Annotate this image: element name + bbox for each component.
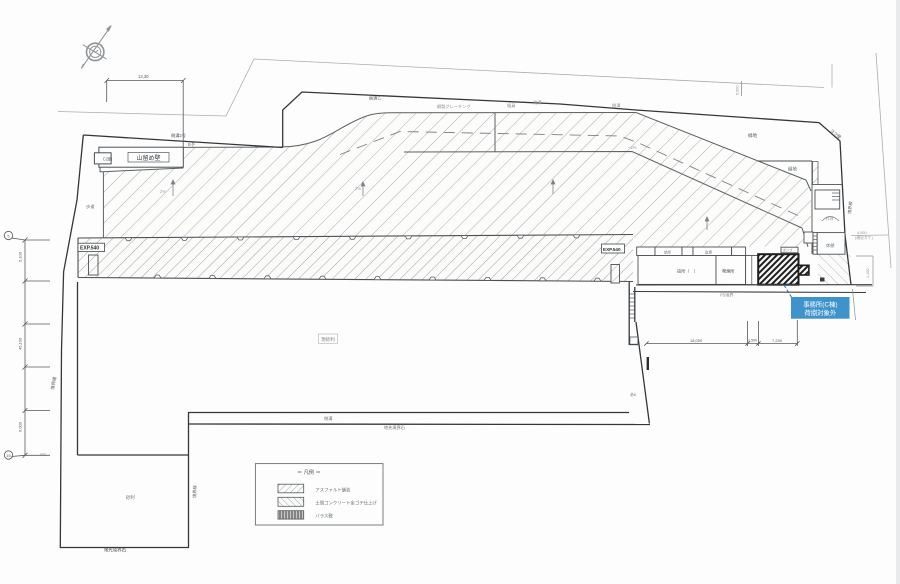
svg-text:詰所（ ）: 詰所（ ） [677,268,698,275]
svg-text:バラス敷: バラス敷 [315,513,333,520]
svg-text:側溝乙: 側溝乙 [369,94,382,102]
svg-text:15: 15 [6,453,11,458]
svg-text:B予: B予 [188,141,195,147]
svg-text:P5境界: P5境界 [720,292,734,299]
svg-text:5: 5 [7,233,10,238]
svg-text:2%: 2% [160,189,166,194]
svg-text:5,000: 5,000 [736,85,740,95]
svg-text:側溝: 側溝 [612,102,621,109]
svg-text:喫煙所: 喫煙所 [722,268,735,275]
svg-text:2%: 2% [355,186,361,191]
svg-text:土間コンクリート金ゴテ仕上げ: 土間コンクリート金ゴテ仕上げ [315,500,377,507]
svg-text:歩道: 歩道 [86,203,95,210]
svg-text:現砂利: 現砂利 [321,336,335,343]
svg-text:緑地: 緑地 [788,166,797,172]
svg-text:EXP.540: EXP.540 [603,247,621,252]
svg-text:砂利: 砂利 [126,494,135,501]
svg-text:＝ 凡例 ＝: ＝ 凡例 ＝ [297,468,321,476]
svg-text:EXP.540: EXP.540 [80,246,99,252]
svg-text:鋼製グレーチング: 鋼製グレーチング [437,103,471,110]
svg-text:13,30: 13,30 [138,74,149,79]
svg-text:荷捌対象外: 荷捌対象外 [804,308,837,317]
svg-text:1,100: 1,100 [866,268,870,278]
svg-text:(現況ガケ): (現況ガケ) [855,235,873,240]
svg-text:C2鋼: C2鋼 [103,156,113,163]
svg-text:18,000: 18,000 [690,338,703,343]
svg-text:1,500: 1,500 [748,338,757,342]
svg-text:地先境界石: 地先境界石 [104,547,127,554]
svg-text:倉庫: 倉庫 [705,250,713,255]
svg-text:アスファルト舗装: アスファルト舗装 [315,487,351,494]
svg-text:4,000: 4,000 [857,231,867,235]
svg-text:地先境界石: 地先境界石 [384,424,405,431]
svg-text:側溝: 側溝 [324,415,333,422]
svg-text:45,100: 45,100 [18,337,23,350]
svg-text:6,000: 6,000 [18,421,23,432]
svg-text:側溝2号: 側溝2号 [171,132,186,139]
svg-text:詰所: 詰所 [664,250,672,255]
svg-text:境界線: 境界線 [49,376,58,391]
svg-text:休憩: 休憩 [826,242,835,249]
svg-text:緑地: 緑地 [748,132,758,138]
svg-text:事務所(C棟): 事務所(C棟) [803,299,837,308]
svg-text:7,230: 7,230 [772,338,783,343]
svg-text:−2%: −2% [628,145,637,150]
svg-text:境界線: 境界線 [191,484,198,498]
svg-text:5,100: 5,100 [18,251,23,262]
svg-text:あ6: あ6 [630,392,636,397]
svg-text:(13): (13) [826,216,834,221]
svg-text:境界線: 境界線 [846,200,854,214]
svg-text:側溝: 側溝 [533,99,542,106]
svg-text:幅員: 幅員 [507,102,516,109]
svg-text:山留め壁: 山留め壁 [136,154,160,162]
svg-text:ポンプ: ポンプ [783,248,794,253]
